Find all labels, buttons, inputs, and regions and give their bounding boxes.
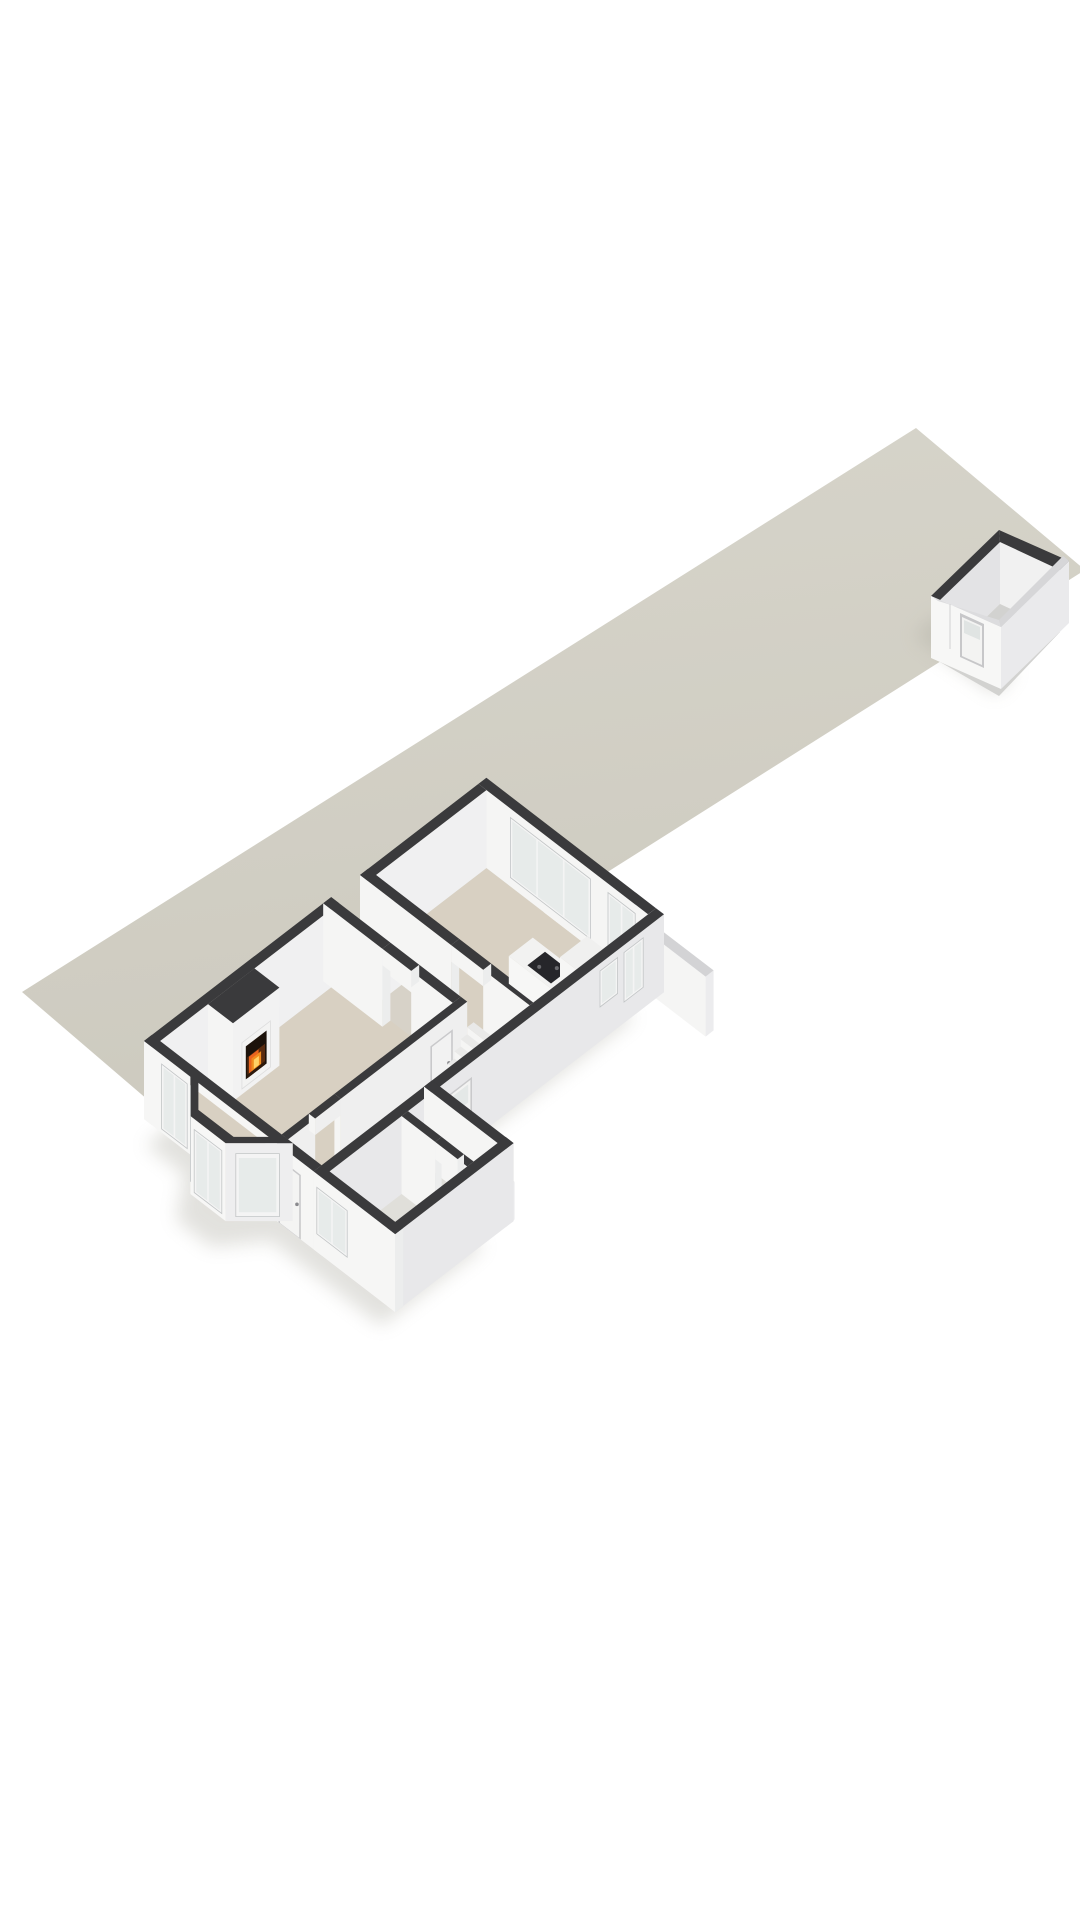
garden-wall-stub-face-side	[706, 970, 714, 1036]
floorplan-3d-figure	[0, 0, 1080, 1920]
cooktop-burner-2	[555, 966, 559, 970]
floorplan-page	[0, 0, 1080, 1920]
window-rear-large-mullion	[563, 859, 565, 917]
window-front-twin-mullion	[174, 1075, 176, 1138]
bay-window-front-mullion	[207, 1141, 209, 1202]
wall-extension-front-face-side	[395, 1228, 403, 1312]
window-right-rear-door-mullion	[633, 946, 635, 994]
bay-window-right-glass	[239, 1158, 276, 1212]
window-extension-front-mullion	[331, 1200, 333, 1245]
window-rear-large-mullion	[536, 839, 538, 897]
front-door-handle	[295, 1203, 299, 1207]
floorplan-3d-render	[0, 0, 1080, 1920]
cooktop-burner-1	[537, 965, 541, 969]
